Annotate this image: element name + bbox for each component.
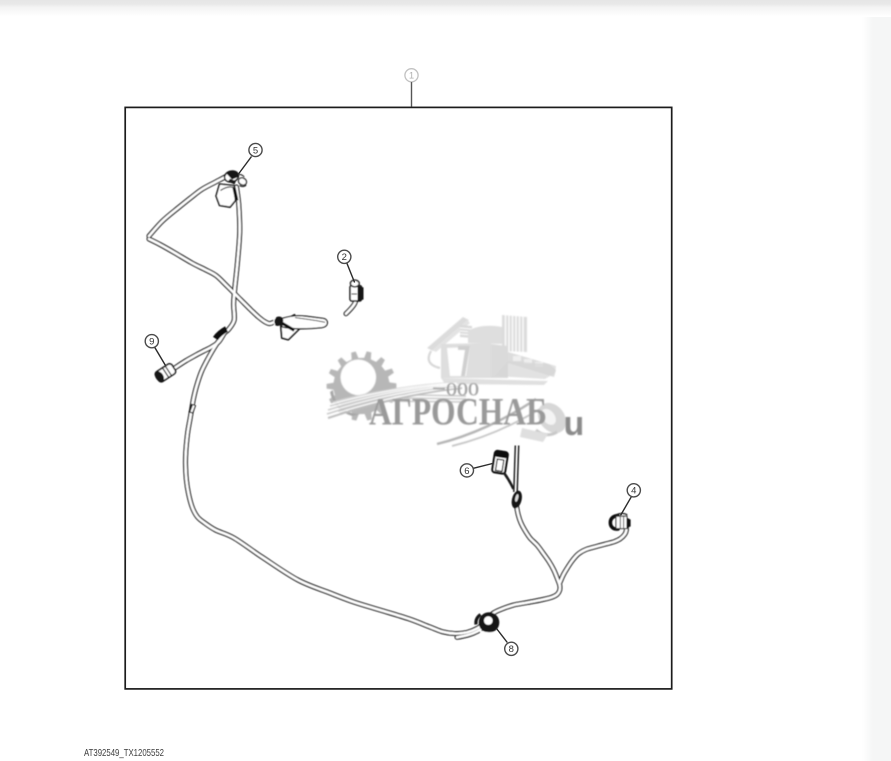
svg-text:9: 9 (149, 337, 154, 348)
svg-text:1: 1 (409, 71, 414, 82)
svg-text:4: 4 (631, 486, 636, 497)
svg-text:8: 8 (509, 644, 514, 655)
svg-text:6: 6 (464, 466, 469, 477)
svg-text:2: 2 (342, 252, 347, 263)
svg-text:AT392549_TX1205552: AT392549_TX1205552 (84, 747, 164, 759)
svg-text:АГРОСНАБ: АГРОСНАБ (369, 391, 547, 434)
svg-text:u: u (564, 405, 585, 443)
svg-text:5: 5 (253, 145, 258, 156)
